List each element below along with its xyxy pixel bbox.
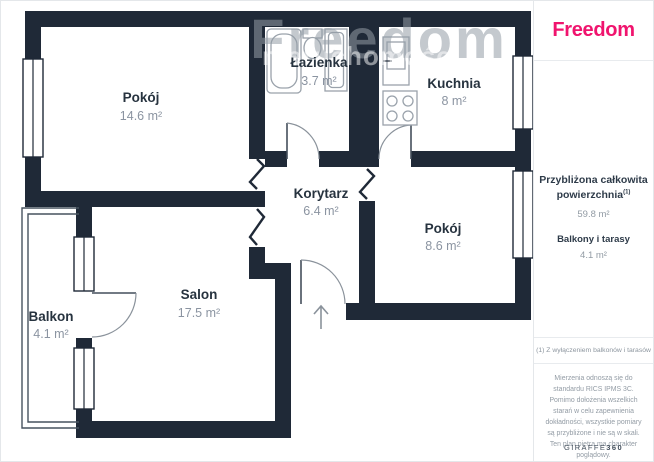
- wall: [275, 263, 291, 423]
- room-area: 3.7 m²: [301, 74, 336, 88]
- footnote-text: (1) Z wyłączeniem balkonów i tarasów: [536, 347, 651, 354]
- room-area: 17.5 m²: [178, 306, 220, 320]
- room-label: Balkon: [28, 309, 73, 324]
- door-arc: [301, 260, 345, 304]
- wall: [25, 191, 265, 207]
- room-label: Pokój: [123, 90, 160, 105]
- wall: [319, 151, 349, 167]
- total-area-value: 59.8 m²: [534, 209, 653, 220]
- giraffe360-logo-bold: 360: [606, 443, 623, 452]
- total-area-title-line1: Przybliżona całkowita: [539, 174, 648, 186]
- room-label: Pokój: [425, 221, 462, 236]
- giraffe360-logo: GIRAFFE360: [534, 443, 653, 452]
- balcony-label: Balkony i tarasy: [534, 234, 653, 245]
- giraffe360-logo-text: GIRAFFE: [564, 443, 606, 452]
- wall: [76, 409, 92, 423]
- total-area-title: Przybliżona całkowita powierzchnia(1): [534, 173, 653, 202]
- opening-symbols: [250, 159, 374, 245]
- info-sidebar: Freedom Przybliżona całkowita powierzchn…: [533, 1, 653, 461]
- burner: [387, 111, 397, 121]
- burner: [387, 96, 397, 106]
- area-summary: Przybliżona całkowita powierzchnia(1) 59…: [534, 61, 653, 337]
- wall: [76, 199, 92, 237]
- room-area: 6.4 m²: [303, 204, 338, 218]
- footnote-box: (1) Z wyłączeniem balkonów i tarasów: [534, 337, 653, 364]
- burner: [403, 96, 413, 106]
- wall: [265, 151, 287, 167]
- total-area-title-line2: powierzchnia: [557, 189, 624, 201]
- room-label: Kuchnia: [427, 76, 481, 91]
- freedom-logo: Freedom: [552, 19, 634, 42]
- room-label: Korytarz: [294, 186, 349, 201]
- logo-box: Freedom: [534, 1, 653, 61]
- door-arc: [92, 293, 136, 337]
- room-label: Łazienka: [290, 55, 348, 70]
- opening-zigzag-icon: [250, 209, 264, 245]
- floor-plan: Freedom nieruchomości Pokój 14.6 m² Łazi…: [1, 1, 533, 461]
- wall: [76, 421, 291, 438]
- door-arc: [379, 125, 411, 159]
- wall: [76, 338, 92, 348]
- room-area: 8.6 m²: [425, 239, 460, 253]
- wall: [359, 201, 375, 311]
- opening-zigzag-icon: [360, 169, 374, 199]
- footnote-marker: (1): [623, 189, 630, 195]
- opening-zigzag-icon: [250, 159, 264, 189]
- room-area: 14.6 m²: [120, 109, 162, 123]
- burner: [403, 111, 413, 121]
- floorplan-page: Freedom nieruchomości Pokój 14.6 m² Łazi…: [0, 0, 654, 462]
- door-arc: [287, 123, 319, 159]
- room-area: 4.1 m²: [33, 327, 68, 341]
- wall: [411, 151, 515, 167]
- floor-plan-svg: Freedom nieruchomości Pokój 14.6 m² Łazi…: [1, 1, 533, 461]
- room-area: 8 m²: [442, 94, 467, 108]
- balcony-value: 4.1 m²: [534, 250, 653, 261]
- room-label: Salon: [181, 287, 218, 302]
- entrance-arrow-icon: [314, 306, 328, 329]
